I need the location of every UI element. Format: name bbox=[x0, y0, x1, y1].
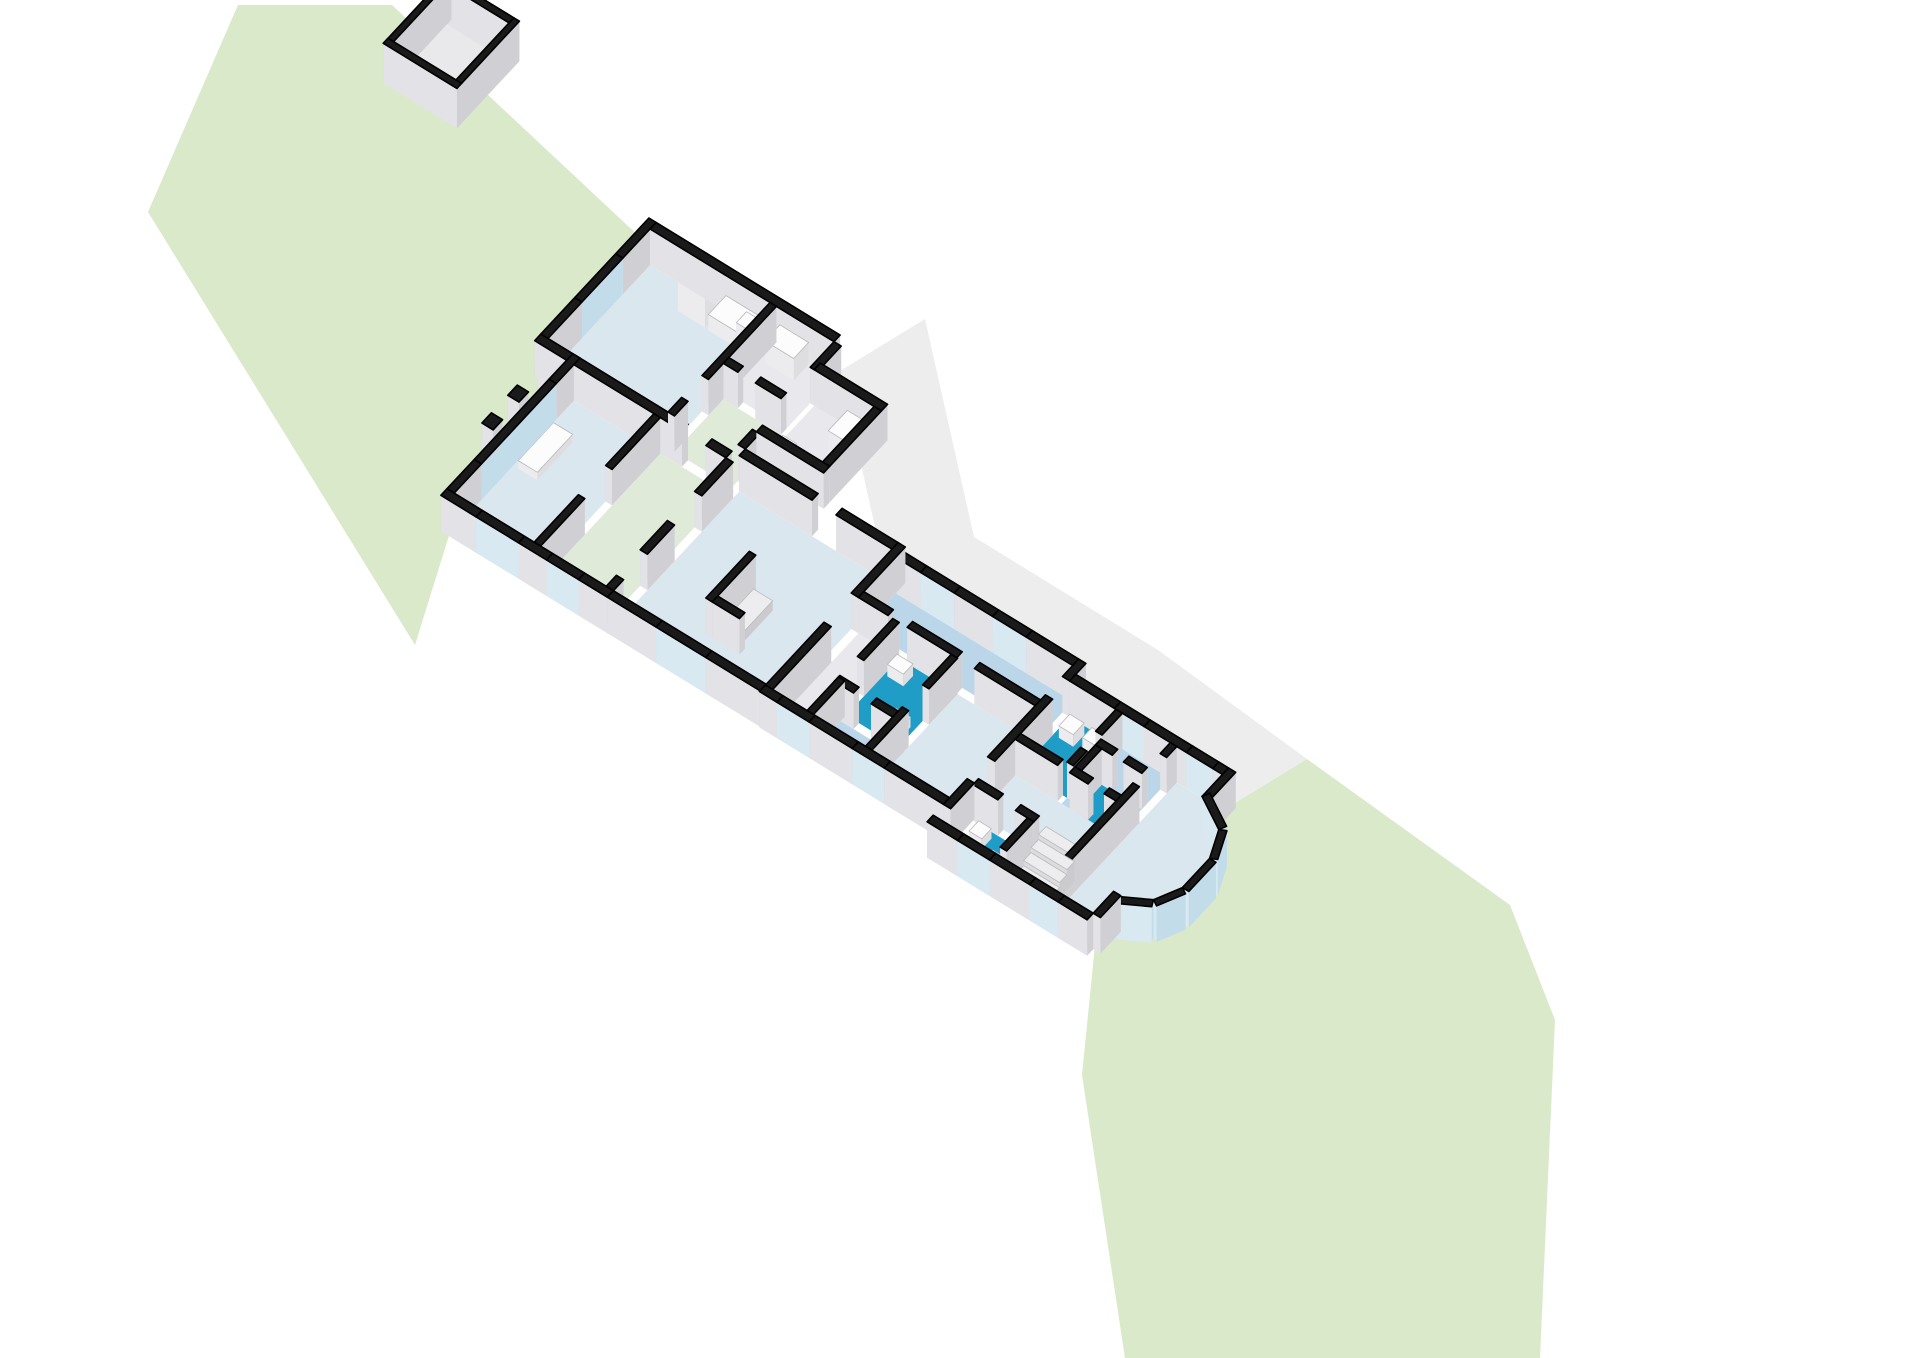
floorplan-3d-view bbox=[0, 0, 1920, 1358]
pantry-divider-a bbox=[723, 358, 743, 409]
floorplan-canvas bbox=[0, 0, 1920, 1358]
